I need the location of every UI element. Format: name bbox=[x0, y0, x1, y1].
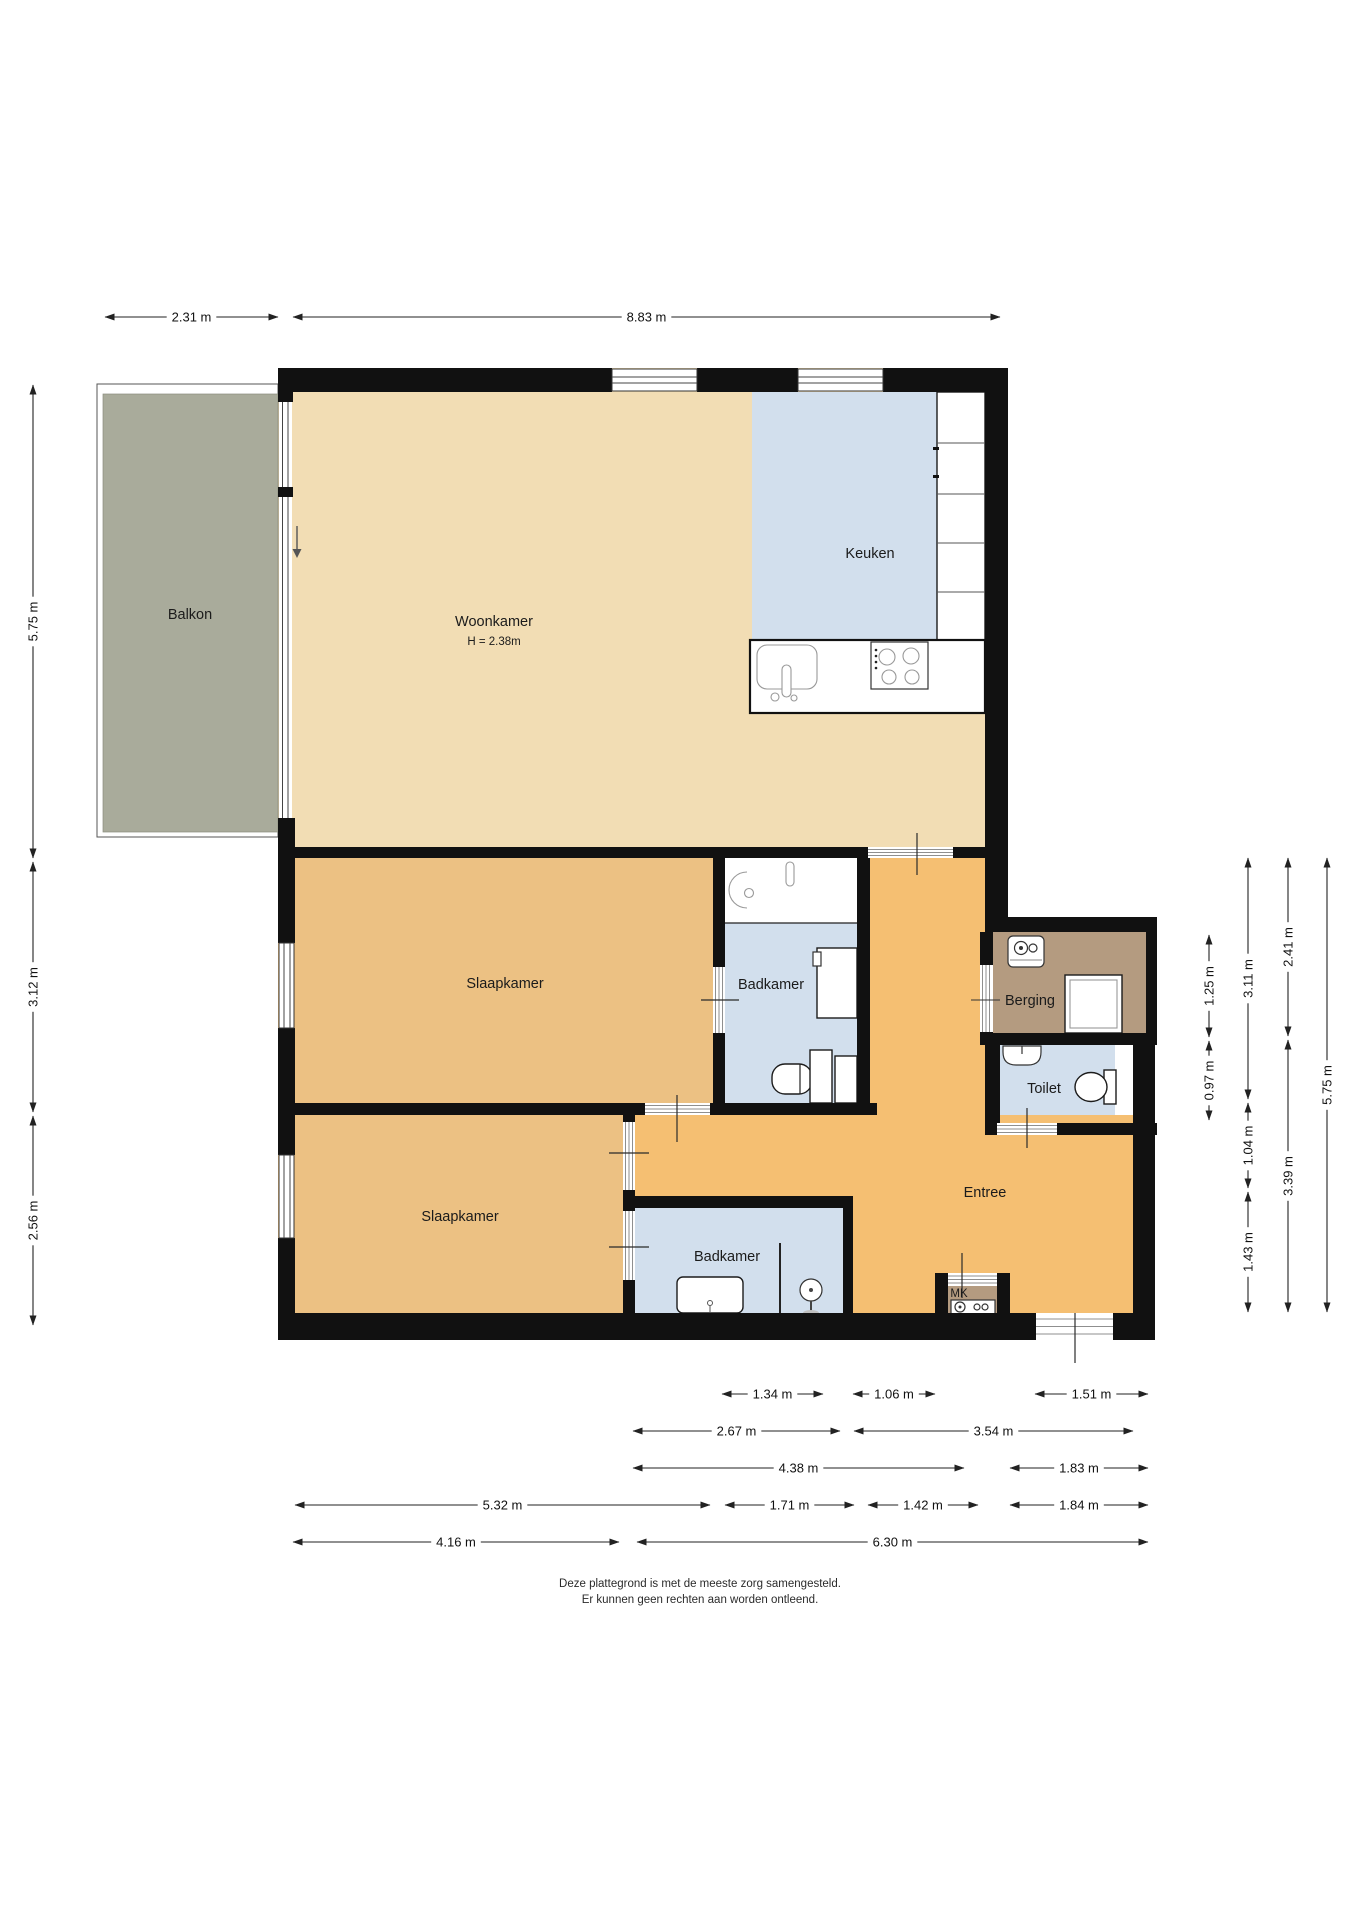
woonkamer-label: Woonkamer bbox=[455, 614, 533, 630]
window-icon bbox=[279, 943, 294, 1028]
toilet-label: Toilet bbox=[1027, 1081, 1061, 1097]
dimension-label: 3.39 m bbox=[1280, 1156, 1295, 1196]
shower-cabin-icon bbox=[813, 948, 857, 1018]
dimension: 2.56 m bbox=[25, 1116, 41, 1325]
dimension-label: 2.56 m bbox=[25, 1201, 40, 1241]
entree-label: Entree bbox=[964, 1185, 1007, 1201]
dimension-label: 6.30 m bbox=[873, 1534, 913, 1549]
boiler-icon bbox=[1008, 936, 1044, 967]
keuken-label: Keuken bbox=[845, 546, 894, 562]
dimension: 1.71 m bbox=[725, 1497, 854, 1513]
disclaimer-line2: Er kunnen geen rechten aan worden ontlee… bbox=[582, 1594, 819, 1606]
kitchen-cabinets-icon bbox=[933, 392, 985, 640]
dimension: 1.06 m bbox=[853, 1386, 935, 1402]
dimension-label: 1.06 m bbox=[874, 1386, 914, 1401]
dimension-label: 1.43 m bbox=[1240, 1232, 1255, 1272]
sliding-door-icon bbox=[278, 402, 293, 818]
dimension: 5.75 m bbox=[25, 385, 41, 858]
entree-corridor-upper bbox=[870, 858, 985, 917]
dimension: 2.67 m bbox=[633, 1423, 840, 1439]
slaapkamer2-label: Slaapkamer bbox=[421, 1209, 499, 1225]
dimension: 1.34 m bbox=[722, 1386, 823, 1402]
window-icon bbox=[798, 369, 883, 391]
badkamer2-label: Badkamer bbox=[694, 1249, 760, 1265]
stove-icon bbox=[871, 642, 928, 689]
dimension: 3.12 m bbox=[25, 862, 41, 1112]
dimension: 1.83 m bbox=[1010, 1460, 1148, 1476]
dimension: 3.11 m bbox=[1240, 858, 1256, 1099]
dimension-label: 3.12 m bbox=[25, 967, 40, 1007]
dimension-label: 2.41 m bbox=[1280, 927, 1295, 967]
berging-label: Berging bbox=[1005, 993, 1055, 1009]
dimension-label: 1.51 m bbox=[1072, 1386, 1112, 1401]
dimension: 1.25 m bbox=[1201, 935, 1217, 1037]
dimension-label: 1.84 m bbox=[1059, 1497, 1099, 1512]
disclaimer: Deze plattegrond is met de meeste zorg s… bbox=[559, 1578, 841, 1606]
badkamer1-label: Badkamer bbox=[738, 977, 804, 993]
washbasin2-icon bbox=[677, 1277, 743, 1313]
dimension: 4.16 m bbox=[293, 1534, 619, 1550]
dimension: 8.83 m bbox=[293, 309, 1000, 325]
dimension: 4.38 m bbox=[633, 1460, 964, 1476]
balkon-label: Balkon bbox=[168, 607, 212, 623]
dimension: 1.43 m bbox=[1240, 1192, 1256, 1312]
floorplan-page: Balkon Woonkamer H = 2.38m Keuken Slaapk… bbox=[0, 0, 1358, 1920]
dimension: 0.97 m bbox=[1201, 1041, 1217, 1120]
entree-corridor-lower bbox=[870, 917, 985, 1115]
dimension: 3.54 m bbox=[854, 1423, 1133, 1439]
dimension: 1.84 m bbox=[1010, 1497, 1148, 1513]
dimension: 1.04 m bbox=[1240, 1103, 1256, 1188]
dimension: 2.41 m bbox=[1280, 858, 1296, 1036]
woonkamer-height-note: H = 2.38m bbox=[467, 636, 520, 648]
window-icon bbox=[279, 1155, 294, 1238]
dimension-label: 1.83 m bbox=[1059, 1460, 1099, 1475]
front-door bbox=[1036, 1313, 1113, 1363]
dimension-label: 1.04 m bbox=[1240, 1126, 1255, 1166]
dimension-label: 2.31 m bbox=[172, 309, 212, 324]
dimension: 1.42 m bbox=[868, 1497, 978, 1513]
dimension-label: 1.34 m bbox=[753, 1386, 793, 1401]
floorplan-svg: Balkon Woonkamer H = 2.38m Keuken Slaapk… bbox=[0, 0, 1358, 1920]
dimension: 5.75 m bbox=[1319, 858, 1335, 1312]
dimension-label: 5.75 m bbox=[25, 602, 40, 642]
door-berging bbox=[980, 965, 993, 1032]
dimension-label: 4.16 m bbox=[436, 1534, 476, 1549]
dimension-label: 5.32 m bbox=[483, 1497, 523, 1512]
dimension: 5.32 m bbox=[295, 1497, 710, 1513]
disclaimer-line1: Deze plattegrond is met de meeste zorg s… bbox=[559, 1578, 841, 1590]
slaapkamer1-label: Slaapkamer bbox=[466, 976, 544, 992]
window-icon bbox=[612, 369, 697, 391]
dimension-label: 4.38 m bbox=[779, 1460, 819, 1475]
washing-machine-icon bbox=[1065, 975, 1122, 1033]
dimension-label: 3.11 m bbox=[1240, 959, 1255, 998]
dimension-label: 5.75 m bbox=[1319, 1065, 1334, 1105]
corner-basin-icon bbox=[1003, 1046, 1041, 1065]
dimension-label: 8.83 m bbox=[627, 309, 667, 324]
dimension: 6.30 m bbox=[637, 1534, 1148, 1550]
dimension-label: 1.42 m bbox=[903, 1497, 943, 1512]
dimension-label: 1.71 m bbox=[770, 1497, 810, 1512]
meter-box-icon bbox=[951, 1300, 995, 1314]
toilet-shaft bbox=[1115, 1045, 1133, 1123]
dimension-label: 0.97 m bbox=[1201, 1061, 1216, 1101]
dimension: 3.39 m bbox=[1280, 1040, 1296, 1312]
dimension-label: 1.25 m bbox=[1201, 966, 1216, 1006]
toilet2-icon bbox=[1075, 1070, 1116, 1104]
dimension: 1.51 m bbox=[1035, 1386, 1148, 1402]
meterkast-label: MK bbox=[950, 1288, 968, 1300]
dimension: 2.31 m bbox=[105, 309, 278, 325]
dimension-label: 2.67 m bbox=[717, 1423, 757, 1438]
dimension-label: 3.54 m bbox=[974, 1423, 1014, 1438]
